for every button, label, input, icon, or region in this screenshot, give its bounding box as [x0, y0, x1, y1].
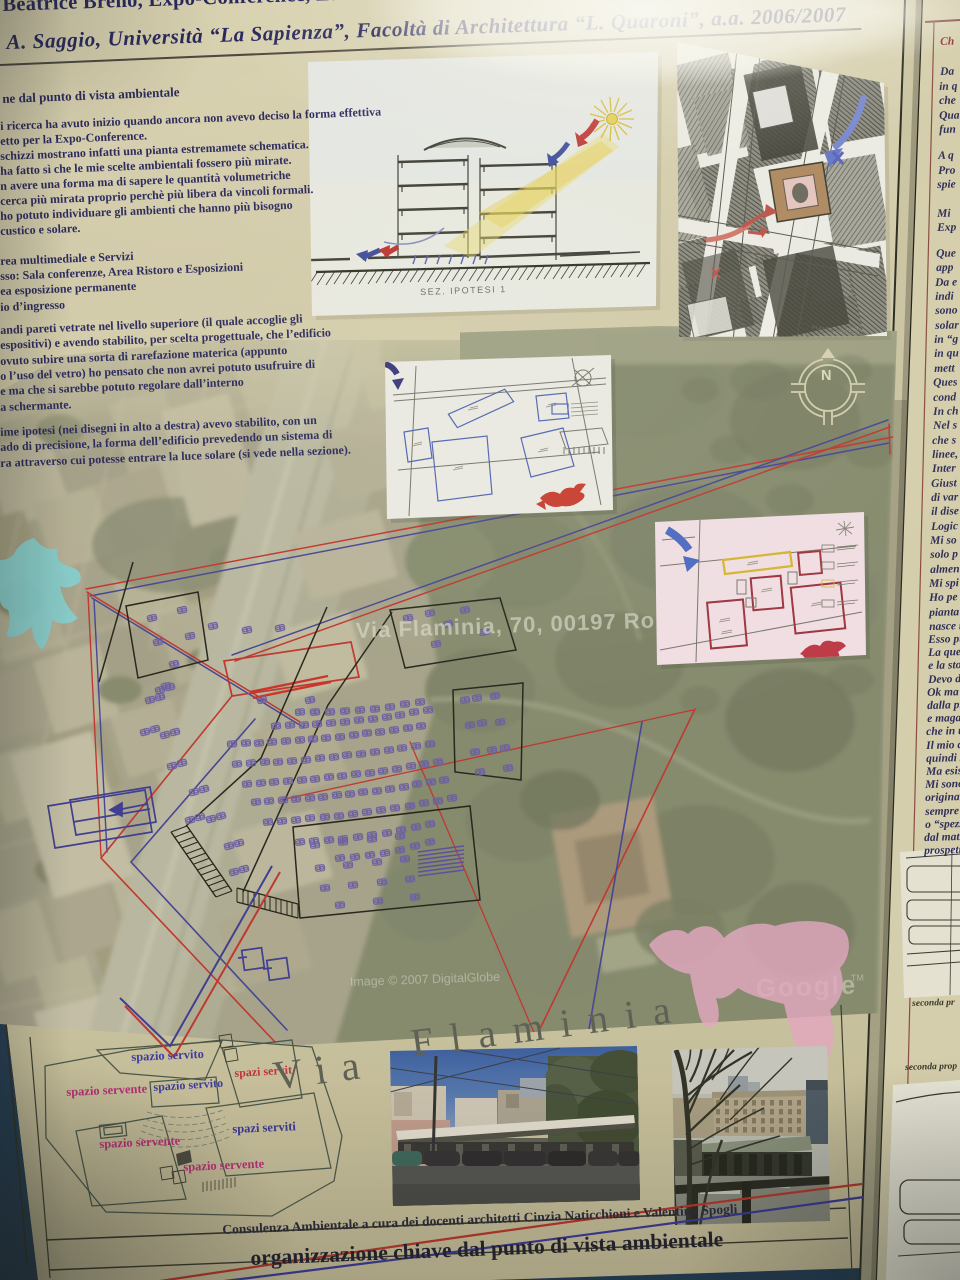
svg-text:TM: TM	[851, 973, 864, 983]
svg-text:N: N	[821, 368, 831, 384]
